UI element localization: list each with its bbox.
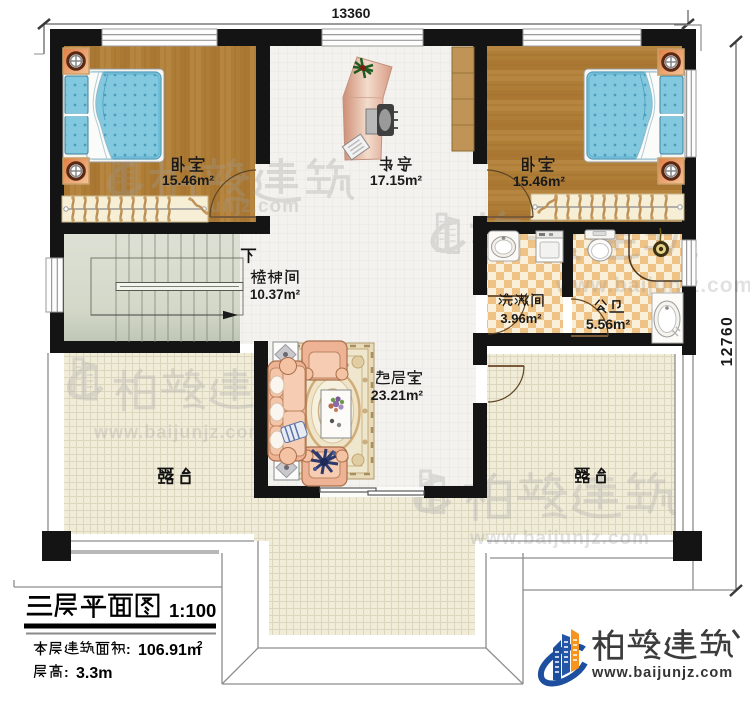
svg-text:2: 2 xyxy=(197,640,203,651)
svg-text:15.46m²: 15.46m² xyxy=(162,172,214,188)
svg-text:www.baijunjz.com: www.baijunjz.com xyxy=(469,528,650,549)
svg-text:3.3m: 3.3m xyxy=(76,665,112,682)
svg-text:1:100: 1:100 xyxy=(169,600,216,621)
svg-text:13360: 13360 xyxy=(332,5,371,21)
svg-text:15.46m²: 15.46m² xyxy=(513,173,565,189)
svg-text:www.baijunjz.com: www.baijunjz.com xyxy=(591,665,733,681)
svg-text::: : xyxy=(64,664,69,680)
svg-text:5.56m²: 5.56m² xyxy=(586,316,631,332)
svg-text:12760: 12760 xyxy=(719,316,736,367)
svg-text:3.96m²: 3.96m² xyxy=(500,311,542,326)
svg-text:www.baijunjz.com: www.baijunjz.com xyxy=(93,422,265,442)
svg-text:23.21m²: 23.21m² xyxy=(371,387,423,403)
svg-text:17.15m²: 17.15m² xyxy=(370,172,422,188)
svg-text::: : xyxy=(126,641,131,657)
svg-text:106.91m: 106.91m xyxy=(138,642,201,659)
svg-text:10.37m²: 10.37m² xyxy=(250,287,301,302)
